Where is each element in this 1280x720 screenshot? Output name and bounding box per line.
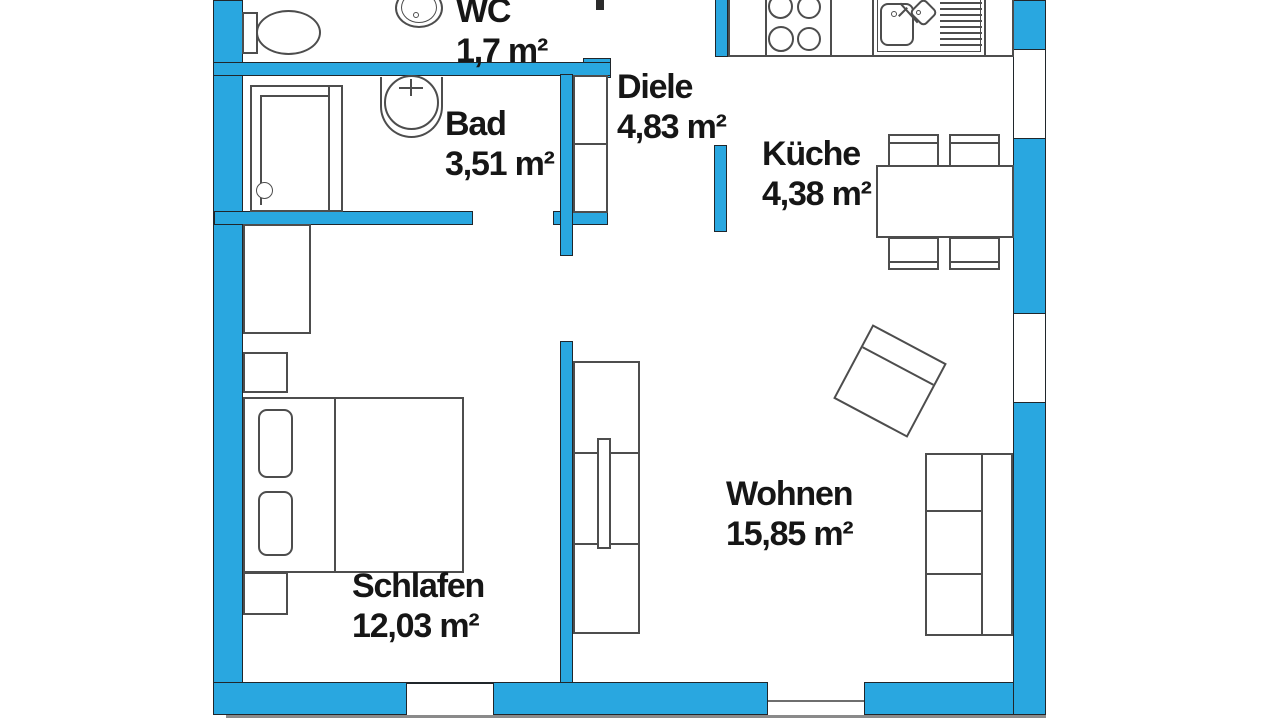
wall-kitchen-left-lower <box>714 145 727 232</box>
diele-cupboard-shelf-line <box>575 143 606 145</box>
wall-wc-bad-divider <box>213 62 611 76</box>
wardrobe <box>243 224 311 334</box>
armchair <box>833 324 947 438</box>
wall-kitchen-left-upper <box>715 0 728 57</box>
room-label-kueche: Küche 4,38 m² <box>762 134 871 214</box>
sofa-back-line <box>981 455 983 634</box>
drainer-line <box>940 26 982 28</box>
toilet-bowl <box>256 10 321 55</box>
drainer-line <box>940 8 982 10</box>
shower-inner-line-top <box>260 95 330 97</box>
room-label-wc: WC 1,7 m² <box>456 0 547 71</box>
stove-left-line <box>765 0 767 55</box>
shower-inner-line-vertical <box>328 87 330 210</box>
kitchen-faucet-dot <box>916 10 921 15</box>
pillow <box>258 409 293 478</box>
wall-right-lower <box>1013 401 1046 715</box>
door-wohnen-threshold-line <box>768 700 864 702</box>
sofa <box>925 453 1013 636</box>
armchair-back-line <box>862 346 934 385</box>
chair-back-line <box>890 142 937 144</box>
room-name: Diele <box>617 67 726 107</box>
room-area: 4,38 m² <box>762 174 871 214</box>
room-label-diele: Diele 4,83 m² <box>617 67 726 147</box>
room-area: 1,7 m² <box>456 31 547 71</box>
bad-sink-faucet-horizontal <box>399 87 423 89</box>
room-label-schlafen: Schlafen 12,03 m² <box>352 566 484 646</box>
drainer-line <box>940 32 982 34</box>
drainer-line <box>940 14 982 16</box>
chair-back-line <box>951 261 998 263</box>
wall-bad-right <box>560 74 573 256</box>
entrance-door-frame <box>596 0 604 10</box>
room-name: Schlafen <box>352 566 484 606</box>
tv <box>597 438 611 549</box>
room-name: Küche <box>762 134 871 174</box>
room-area: 12,03 m² <box>352 606 484 646</box>
chair <box>949 134 1000 167</box>
wc-sink-faucet-dot <box>413 12 419 18</box>
drainer-line <box>940 20 982 22</box>
wall-schlafen-wohnen <box>560 341 573 684</box>
sofa-cushion-line <box>927 573 981 575</box>
room-name: WC <box>456 0 547 31</box>
chair <box>888 134 939 167</box>
stove-burner <box>768 26 794 52</box>
pillow <box>258 491 293 556</box>
chair-back-line <box>890 261 937 263</box>
chair-back-line <box>951 142 998 144</box>
kitchen-faucet-dot <box>891 11 897 17</box>
wall-bad-bottom <box>214 211 473 225</box>
plan-bottom-edge-line <box>226 715 1046 718</box>
wall-bottom-left <box>213 682 407 715</box>
stove-burner <box>797 27 821 51</box>
kitchen-sink-basin <box>880 3 914 46</box>
window-wohnen <box>1013 313 1046 403</box>
wall-right-upper <box>1013 0 1046 51</box>
chair <box>949 237 1000 270</box>
wall-right-middle <box>1013 137 1046 315</box>
nightstand <box>243 572 288 615</box>
nightstand <box>243 352 288 393</box>
sofa-cushion-line <box>927 510 981 512</box>
drainer-line <box>940 38 982 40</box>
drainer-line <box>940 2 982 4</box>
wall-bottom-middle <box>493 682 768 715</box>
drainer-line <box>940 44 982 46</box>
room-label-wohnen: Wohnen 15,85 m² <box>726 474 852 554</box>
dining-table <box>876 165 1014 238</box>
window-kueche <box>1013 49 1046 139</box>
shower-drain <box>256 182 273 199</box>
wall-left-outer <box>213 0 243 715</box>
room-area: 15,85 m² <box>726 514 852 554</box>
room-name: Wohnen <box>726 474 852 514</box>
room-label-bad: Bad 3,51 m² <box>445 104 554 184</box>
room-name: Bad <box>445 104 554 144</box>
door-schlafen-terrace-line <box>406 682 494 684</box>
stove-right-line <box>830 0 832 55</box>
bed-headboard-line <box>334 399 336 571</box>
room-area: 4,83 m² <box>617 107 726 147</box>
room-area: 3,51 m² <box>445 144 554 184</box>
floor-plan: WC 1,7 m² Bad 3,51 m² Diele 4,83 m² Küch… <box>0 0 1280 720</box>
chair <box>888 237 939 270</box>
